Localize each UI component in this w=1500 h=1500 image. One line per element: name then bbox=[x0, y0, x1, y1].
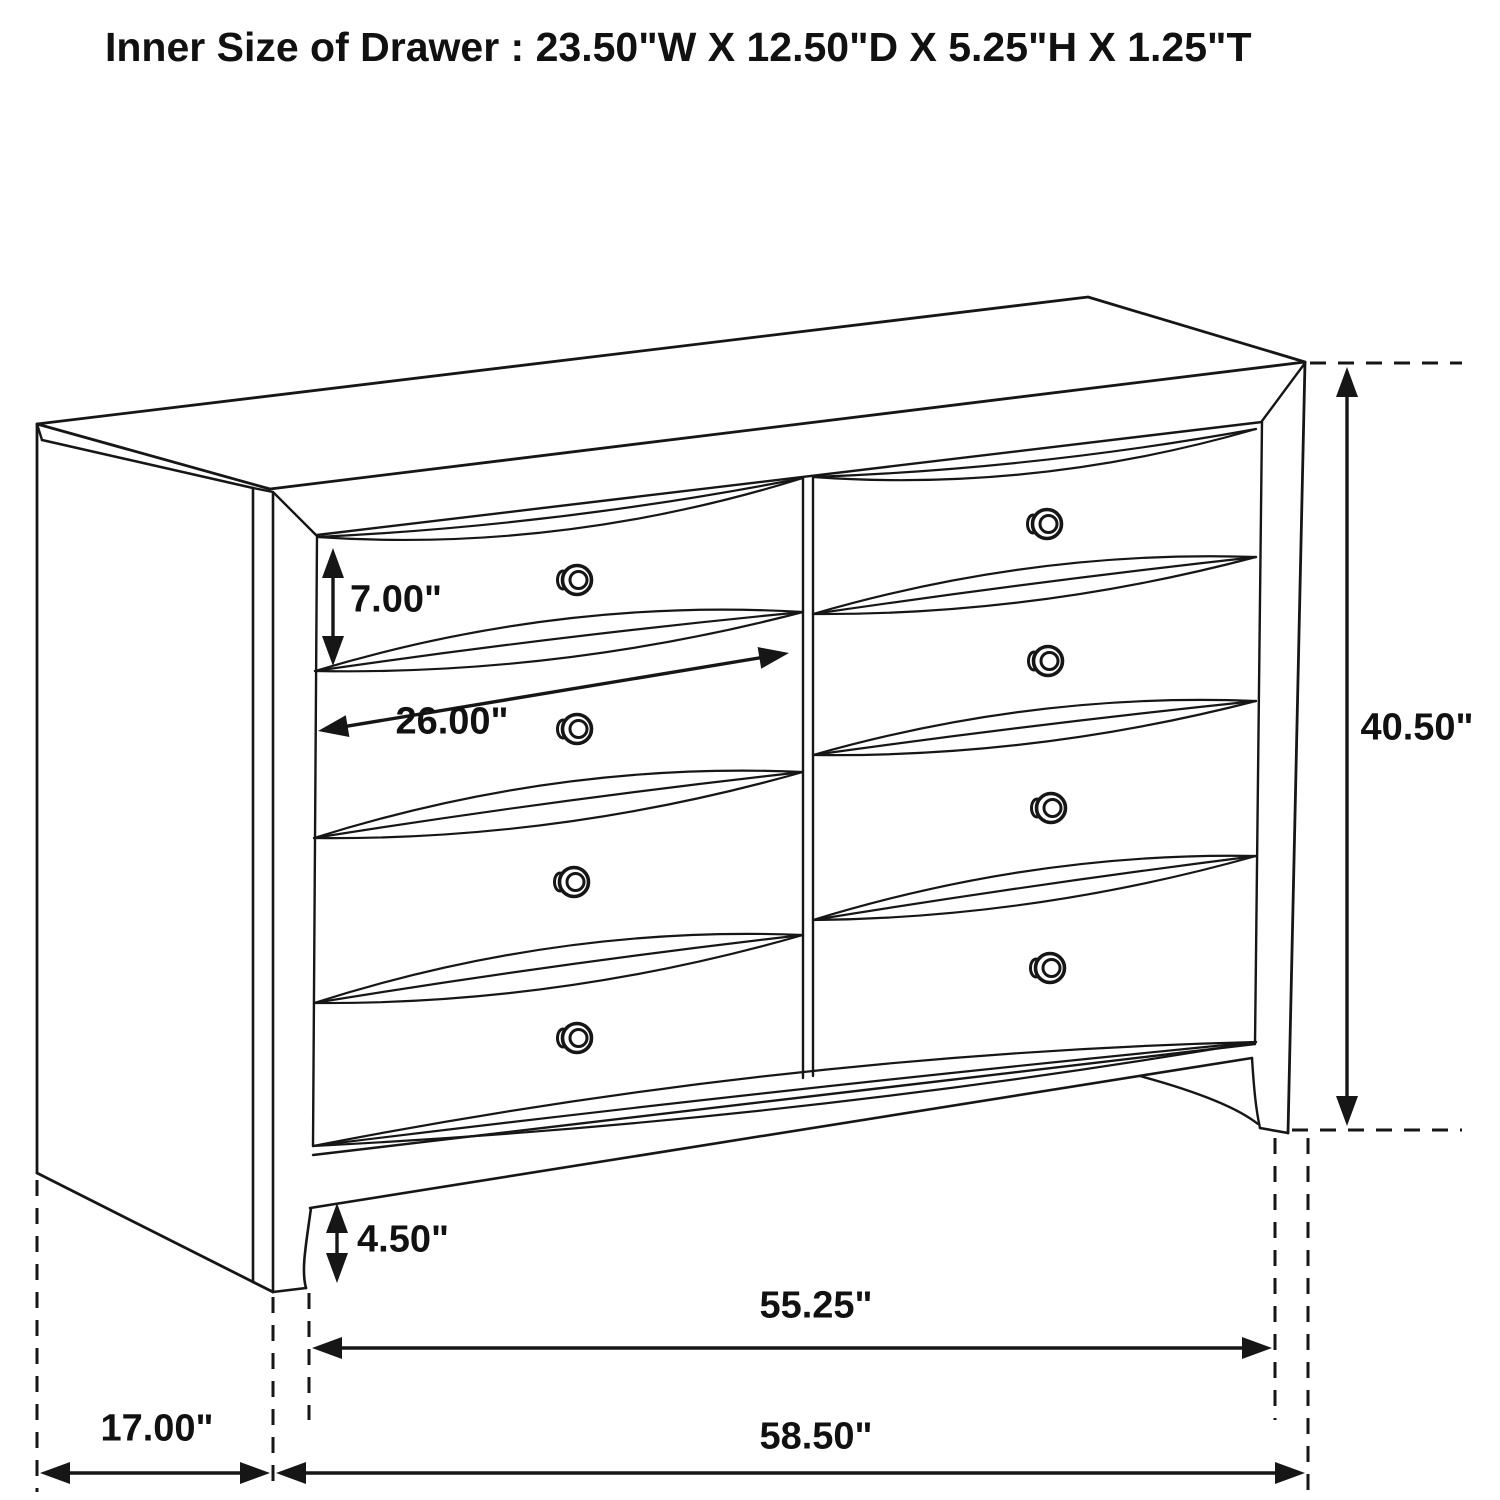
dim-label-overall_height: 40.50" bbox=[1360, 707, 1473, 750]
dresser-line-drawing bbox=[0, 0, 1500, 1500]
drawer-knob bbox=[1031, 954, 1065, 983]
extension-lines bbox=[37, 363, 1462, 1492]
drawer-knob bbox=[555, 868, 589, 897]
dim-label-leg_height: 4.50" bbox=[357, 1219, 449, 1262]
dimension-arrow-overall_height bbox=[1336, 367, 1358, 1126]
dimension-arrow-inner_width bbox=[312, 1337, 1272, 1359]
drawer-knob bbox=[558, 566, 592, 595]
dim-label-side_depth: 17.00" bbox=[100, 1408, 213, 1451]
dim-label-overall_width: 58.50" bbox=[759, 1416, 872, 1459]
dim-label-drawer_width: 26.00" bbox=[395, 701, 508, 744]
drawer-knob bbox=[1029, 647, 1063, 676]
dimension-arrow-overall_width bbox=[276, 1462, 1305, 1484]
dimension-diagram: Inner Size of Drawer : 23.50"W X 12.50"D… bbox=[0, 0, 1500, 1500]
drawer-knob bbox=[1032, 794, 1066, 823]
dimension-arrow-leg_height bbox=[326, 1203, 348, 1283]
drawer-gaps bbox=[313, 429, 1256, 1146]
dresser-structure bbox=[37, 297, 1305, 1292]
dim-label-drawer_height: 7.00" bbox=[350, 579, 442, 622]
dimension-arrow-drawer_height bbox=[322, 548, 344, 666]
drawer-knob bbox=[1028, 510, 1062, 539]
dim-label-inner_width: 55.25" bbox=[759, 1285, 872, 1328]
dimension-arrow-side_depth bbox=[40, 1462, 270, 1484]
drawer-knob bbox=[558, 1024, 592, 1053]
drawer-knob bbox=[558, 715, 592, 744]
